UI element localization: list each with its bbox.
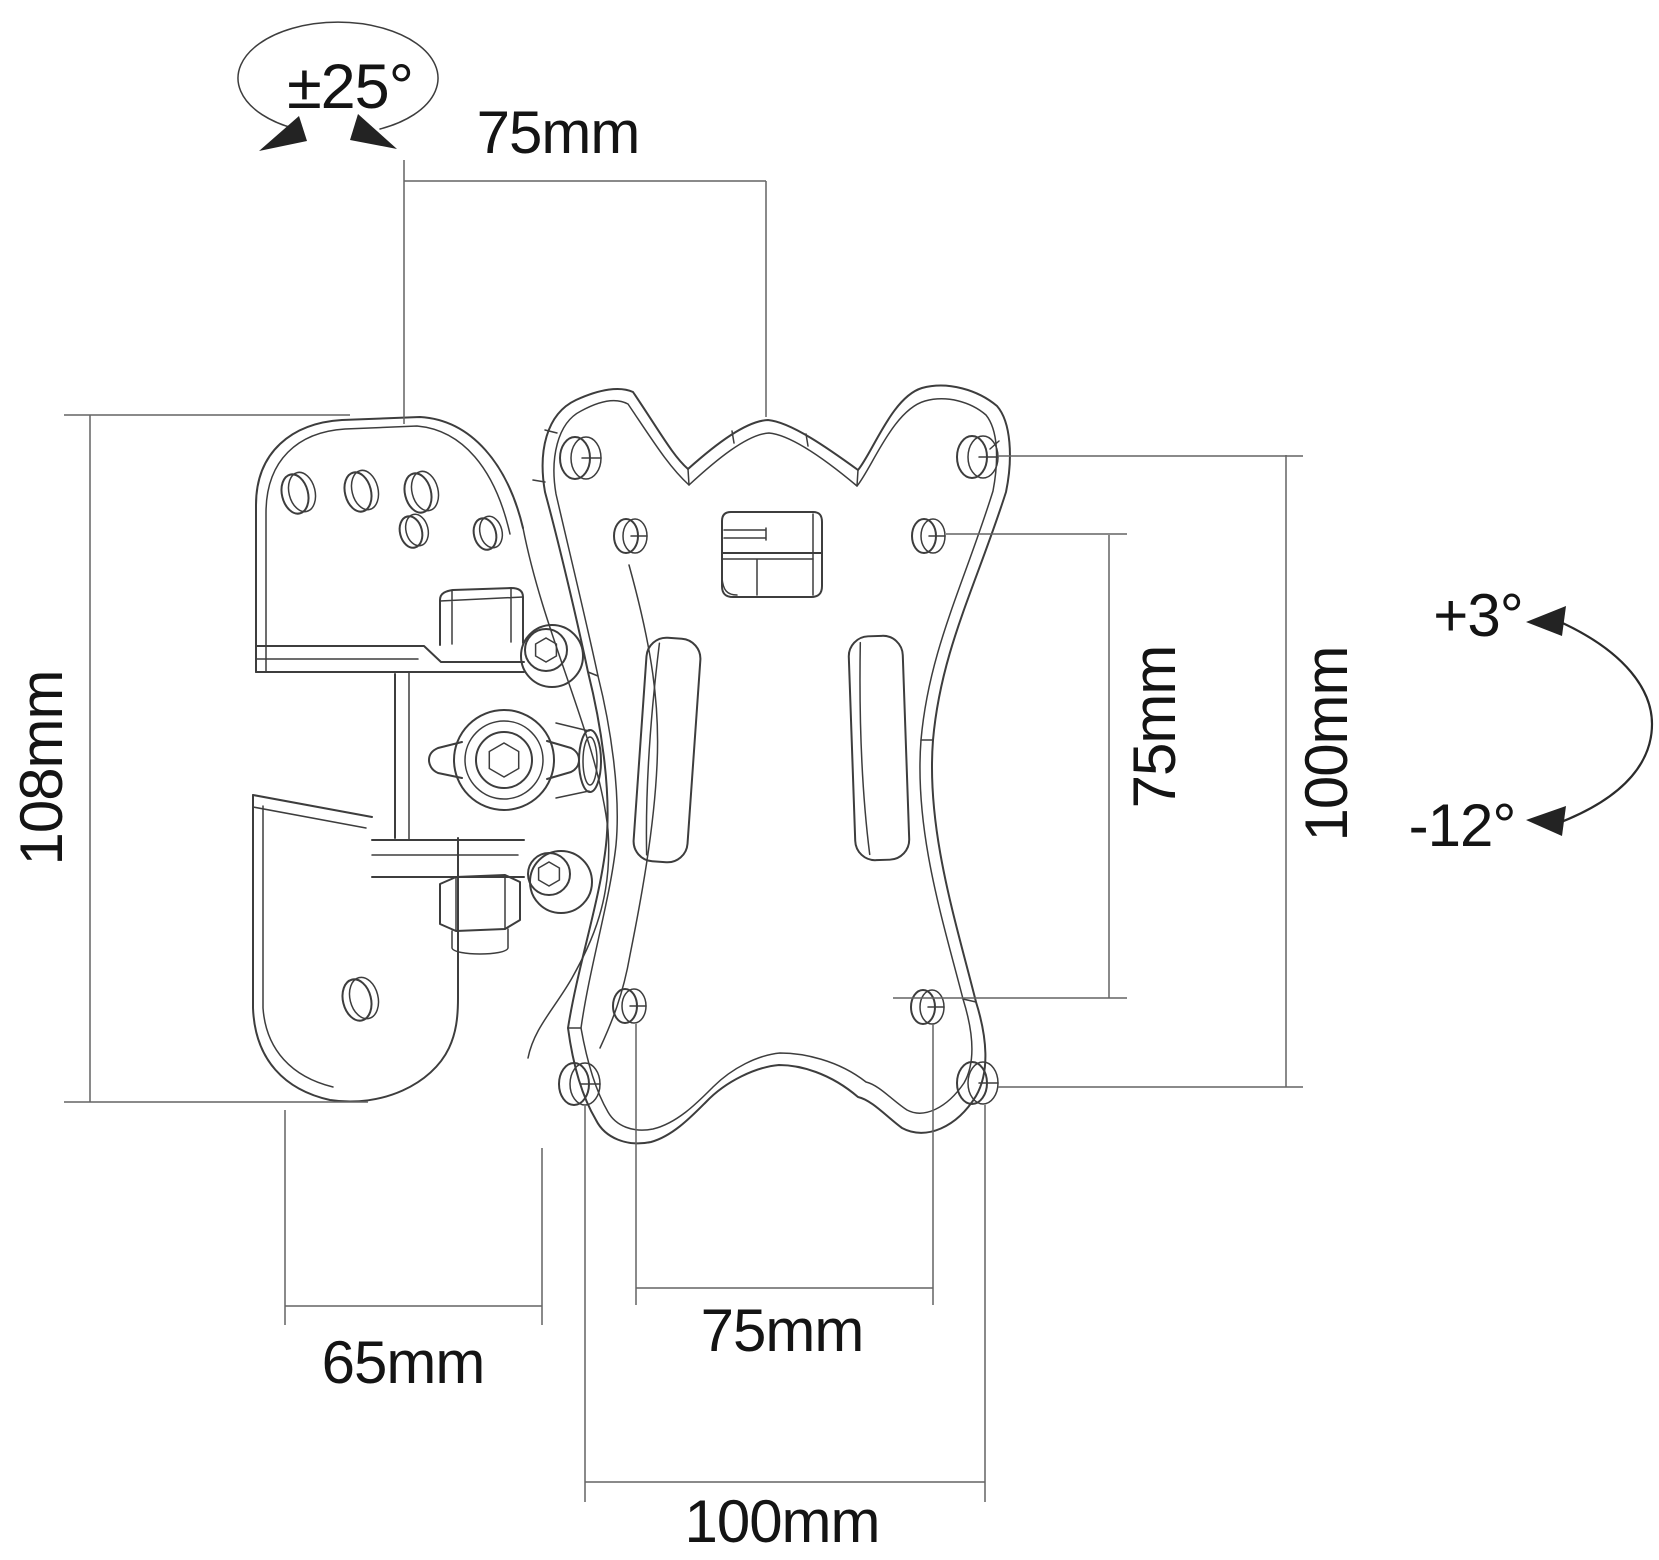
slot-rails	[632, 635, 910, 863]
top-width-label: 75mm	[438, 101, 678, 165]
tilt-down-label: -12°	[1342, 794, 1582, 858]
tilt-up-label: +3°	[1358, 584, 1598, 648]
left-height-label: 108mm	[10, 648, 74, 888]
wall-plate-top-holes	[278, 467, 443, 516]
bottom-socket-bolt	[528, 851, 592, 913]
dim-left-height	[64, 415, 368, 1102]
bottom-inner-width-label: 75mm	[662, 1299, 902, 1363]
vesa-plate	[523, 386, 1010, 1144]
dim-top-width	[404, 160, 766, 424]
latch	[722, 512, 822, 597]
clamp-bolt	[429, 710, 601, 810]
flange-slot-holes	[396, 512, 505, 552]
right-inner-height-label: 75mm	[1123, 607, 1187, 847]
hinge-arm	[372, 588, 601, 954]
dim-right-inner	[893, 534, 1127, 998]
swivel-range-label: ±25°	[230, 55, 470, 119]
wall-depth-label: 65mm	[283, 1331, 523, 1395]
dim-wall-depth	[285, 1110, 542, 1325]
wall-plate	[253, 417, 524, 1102]
bottom-outer-width-label: 100mm	[662, 1490, 902, 1554]
hex-nut	[440, 875, 520, 954]
technical-drawing: ±25° 75mm 108mm 65mm 75mm 100mm 75mm 100…	[0, 0, 1659, 1560]
inner-vesa-holes	[613, 519, 945, 1024]
